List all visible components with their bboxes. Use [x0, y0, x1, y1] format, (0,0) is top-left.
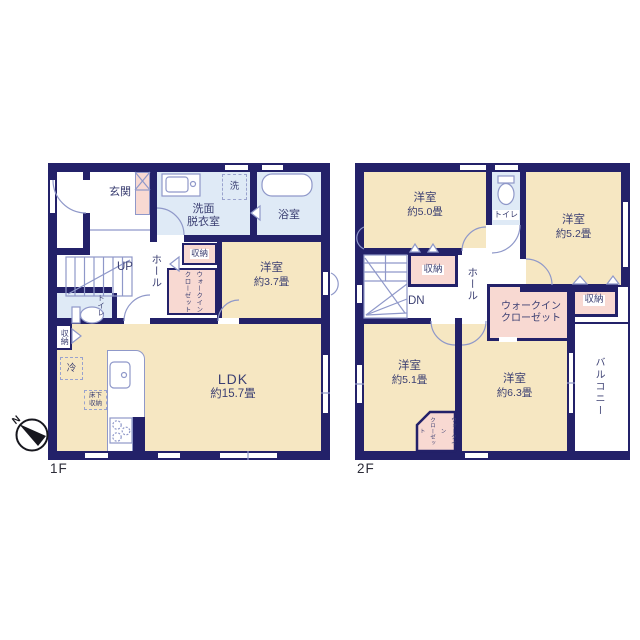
window — [621, 202, 630, 267]
western-room-label-5-1: 洋室 約5.1畳 — [364, 356, 455, 390]
bathroom-text: 浴室 — [278, 209, 300, 222]
wall — [83, 213, 90, 248]
western-room-51-size: 約5.1畳 — [392, 374, 428, 387]
balcony-rail-upper — [618, 287, 630, 322]
balcony-text: バルコニー — [592, 357, 604, 417]
dn-text: DN — [408, 295, 425, 307]
western-room-50-name: 洋室 — [414, 192, 437, 206]
floor2-plan: 洋室 約5.0畳 トイレ 洋室 約5.2畳 収納 ホール DN ウォークイン ク… — [355, 163, 630, 460]
western-room-label-6-3: 洋室 約6.3畳 — [462, 368, 567, 404]
entrance-opening — [48, 180, 57, 213]
wall — [455, 318, 462, 324]
up-text: UP — [117, 261, 133, 273]
walk-in-closet-main-text: ウォークイン クローゼット — [501, 301, 561, 325]
hall-text: ホール — [150, 254, 163, 289]
wall — [57, 248, 90, 255]
hall-label-2f: ホール — [461, 262, 483, 306]
hall-label: ホール — [145, 250, 167, 292]
entrance-text: 玄関 — [109, 186, 131, 199]
entrance-label: 玄関 — [90, 185, 150, 200]
window — [158, 451, 180, 460]
western-room-size: 約3.7畳 — [254, 276, 290, 289]
toilet-label-1f: トイレ — [91, 293, 111, 318]
western-room-name: 洋室 — [260, 262, 283, 276]
storage-hall-label: 収納 — [182, 243, 217, 265]
kitchen-wall-stub — [133, 417, 145, 451]
western-room-label-5-2: 洋室 約5.2畳 — [526, 210, 621, 244]
underfloor-storage-label: 床下 収納 — [89, 392, 102, 408]
walk-in-closet-label-1f: ウォークイン クローゼット — [168, 269, 216, 314]
wall — [150, 172, 157, 235]
room-bathroom — [257, 172, 321, 235]
storage-right-text: 収納 — [583, 295, 604, 306]
western-room-51-name: 洋室 — [398, 360, 421, 374]
western-room-63-name: 洋室 — [503, 373, 526, 387]
wall — [150, 235, 157, 242]
window — [355, 285, 364, 303]
window — [460, 163, 486, 172]
compass-icon: N — [8, 406, 56, 458]
toilet-text-2f: トイレ — [493, 210, 519, 219]
toilet-label-2f: トイレ — [492, 208, 520, 222]
wall — [83, 172, 90, 180]
wall — [112, 293, 117, 318]
wall — [184, 235, 321, 242]
washroom-text: 洗面 脱衣室 — [187, 203, 220, 229]
window-sliding — [321, 355, 330, 413]
underfloor-storage-box: 床下 収納 — [84, 390, 107, 410]
walk-in-closet-main-label: ウォークイン クローゼット — [487, 284, 575, 341]
kitchen-counter — [107, 350, 145, 417]
storage-right-label: 収納 — [570, 284, 618, 317]
ldk-size: 約15.7畳 — [210, 388, 255, 402]
western-room-63-size: 約6.3畳 — [497, 387, 533, 400]
kitchen-counter-base — [107, 417, 133, 451]
storage-hall-text: 収納 — [190, 249, 209, 259]
western-room-label-3-7: 洋室 約3.7畳 — [222, 260, 321, 290]
western-room-52-name: 洋室 — [562, 214, 585, 228]
western-room-label-5-0: 洋室 約5.0畳 — [364, 188, 486, 222]
stairs-up-label: UP — [117, 261, 133, 275]
ldk-label: LDK 約15.7畳 — [145, 368, 321, 404]
window — [321, 272, 330, 295]
storage-left-text: 収納 — [422, 265, 443, 276]
bathroom-label: 浴室 — [257, 208, 321, 223]
window-sliding — [220, 451, 277, 460]
western-room-50-size: 約5.0畳 — [407, 206, 443, 219]
ldk-name: LDK — [218, 371, 248, 388]
toilet-text-1f: トイレ — [97, 294, 106, 317]
floor2-label: 2F — [357, 461, 375, 476]
window-sliding — [355, 365, 364, 403]
window — [465, 451, 488, 460]
wall — [364, 318, 431, 324]
fridge-label: 冷 — [67, 363, 77, 374]
wall — [150, 318, 218, 324]
balcony-label: バルコニー — [575, 334, 621, 440]
stairs-down — [364, 255, 407, 318]
washroom-label: 洗面 脱衣室 — [157, 202, 250, 230]
western-room-52-size: 約5.2畳 — [556, 228, 592, 241]
stairs-down-label: DN — [408, 295, 425, 309]
fridge-box: 冷 — [60, 357, 83, 380]
washer-box: 洗 — [222, 174, 247, 200]
washer-label: 洗 — [230, 181, 240, 192]
window — [225, 163, 248, 172]
wall — [250, 172, 257, 235]
hall-text-2f: ホール — [466, 267, 479, 302]
window — [85, 451, 108, 460]
floor1-plan: 冷 床下 収納 洗 — [48, 163, 330, 460]
walk-in-closet-small-label: ウォークイン クローゼット — [420, 414, 454, 448]
wall — [239, 318, 321, 324]
storage-ldk-text: 収納 — [60, 329, 70, 345]
floorplan-page: { "palette": { "wall": "#232169", "room_… — [0, 0, 640, 640]
window-to-balcony — [567, 353, 575, 413]
window — [262, 163, 283, 172]
storage-ldk-label: 収納 — [57, 324, 72, 350]
window — [495, 163, 518, 172]
storage-left-label: 収納 — [408, 253, 458, 287]
walk-in-closet-text-1f: ウォークイン クローゼット — [180, 271, 203, 313]
walk-in-closet-small-text: ウォークイン クローゼット — [416, 414, 458, 448]
floor1-label: 1F — [50, 461, 68, 476]
